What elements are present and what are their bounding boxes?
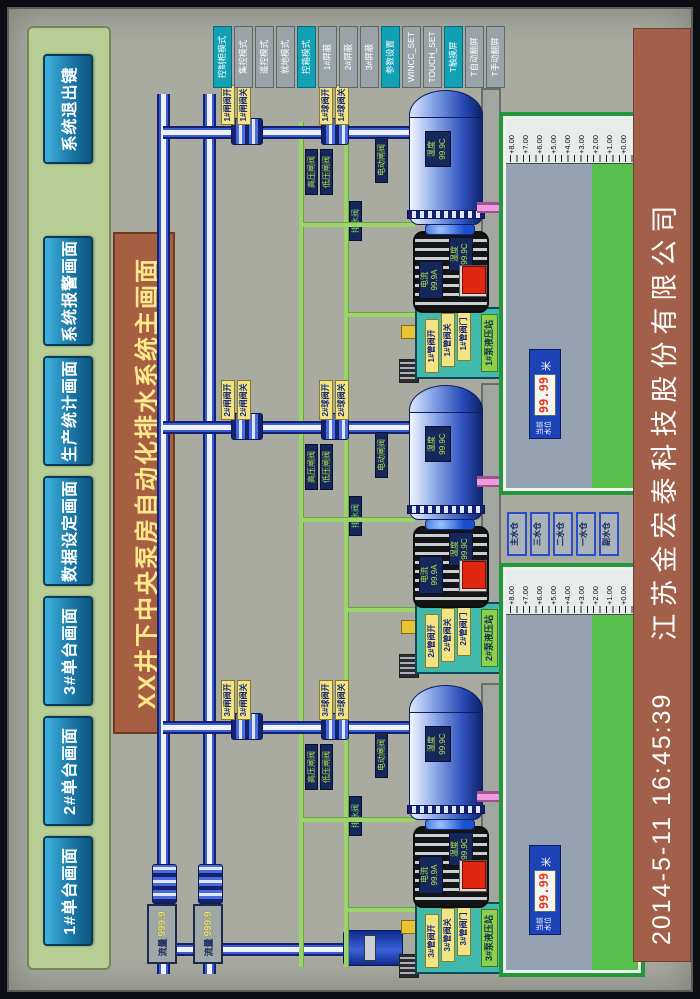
sump-button-two[interactable]: 二水仓	[553, 512, 573, 556]
mode-button-column: 控制柜模式 集控模式 遥控模式 就地模式 控箱模式 1#屏蔽 2#屏蔽 3#屏蔽…	[213, 26, 505, 88]
pump-flange-ring	[407, 210, 485, 219]
mode-button-mask-3[interactable]: 3#屏蔽	[360, 26, 379, 88]
valve-close-tag: 1#球阀关	[335, 85, 349, 125]
water-level-value: 99.99	[534, 870, 556, 912]
water-level-unit: 米	[538, 361, 553, 371]
status-bar: 2014-5-11 16:45:39 江苏金宏泰科技股份有限公司	[633, 28, 691, 962]
level-gauge: +8.00 +7.00 +6.00 +5.00 +4.00 +3.00 +2.0…	[506, 570, 638, 615]
water-surface	[592, 119, 638, 488]
water-surface	[592, 570, 638, 970]
valve-open-tag: 1#闸阀开	[221, 85, 235, 125]
hydraulic-station-panel: 2#管阀开 2#管阀关 2#管阀门 2#泵液压站	[415, 602, 503, 674]
pipe-valve-tag: 2#管阀关	[441, 608, 455, 662]
pipe-valve-tag: 1#管阀关	[441, 313, 455, 367]
sump-button-main[interactable]: 主水仓	[507, 512, 527, 556]
motor-current-label: 电流 99.9A	[419, 261, 443, 299]
mode-button-param-set[interactable]: 参数设置	[381, 26, 400, 88]
mode-button-mask-1[interactable]: 1#屏蔽	[318, 26, 337, 88]
gauge-tick-label: +0.00	[620, 121, 628, 154]
motor-stop-indicator[interactable]	[459, 265, 487, 297]
water-level-unit: 米	[538, 857, 553, 867]
gauge-tick-label: +5.00	[550, 121, 558, 154]
pipe-valve-tag: 1#管阀门	[457, 307, 471, 361]
hydraulic-station-title: 2#泵液压站	[481, 609, 498, 667]
pump-flange-ring	[407, 805, 485, 814]
mode-button-remote[interactable]: 遥控模式	[255, 26, 274, 88]
gauge-tick-label: +8.00	[508, 572, 516, 605]
sump-pool-1: +8.00 +7.00 +6.00 +5.00 +4.00 +3.00 +2.0…	[499, 112, 645, 495]
hydraulic-station-panel: 3#管阀开 3#管阀关 3#管阀门 3#泵液压站	[415, 902, 503, 974]
electric-valve-label: 电动闸阀	[375, 732, 388, 778]
gauge-tick-label: +8.00	[508, 121, 516, 154]
current-caption: 电流	[420, 858, 430, 892]
pump-coupling	[425, 519, 475, 530]
low-pressure-valve-label: 低压闸阀	[320, 744, 333, 790]
pipe-valve-tag: 2#管阀开	[425, 614, 439, 668]
sump-button-group: 主水仓 三水仓 二水仓 一水仓 副水仓	[507, 512, 619, 556]
mode-button-cabinet[interactable]: 控制柜模式	[213, 26, 232, 88]
drain-valve-label: 排水阀	[349, 201, 362, 241]
water-level-display-2: 当前水位 99.99 米	[529, 845, 561, 935]
gauge-tick-label: +7.00	[522, 121, 530, 154]
valve-open-tag: 3#球阀开	[319, 680, 333, 720]
gauge-tick-label: +5.00	[550, 572, 558, 605]
water-level-value: 99.99	[534, 374, 556, 416]
gauge-tick-label: +3.00	[578, 572, 586, 605]
water-level-display-1: 当前水位 99.99 米	[529, 349, 561, 439]
low-pressure-valve-label: 低压闸阀	[320, 149, 333, 195]
valve-status-tags: 1#球阀开 1#球阀关	[319, 85, 349, 125]
gauge-tick-label: +6.00	[536, 572, 544, 605]
current-caption: 电流	[420, 558, 430, 592]
company-name: 江苏金宏泰科技股份有限公司	[643, 199, 682, 641]
mode-button-auto-flip[interactable]: T自动翻屏	[465, 26, 484, 88]
mode-button-mask-2[interactable]: 2#屏蔽	[339, 26, 358, 88]
gauge-tick-label: +1.00	[606, 121, 614, 154]
valve-close-tag: 3#球阀关	[335, 680, 349, 720]
hydraulic-station-title: 3#泵液压站	[481, 909, 498, 967]
gauge-tick-label: +4.00	[564, 572, 572, 605]
pipe-valve-tag: 3#管阀门	[457, 902, 471, 956]
electric-valve-label: 电动闸阀	[375, 432, 388, 478]
valve-status-tags: 3#球阀开 3#球阀关	[319, 680, 349, 720]
valve-status-tags: 3#闸阀开 3#闸阀关	[221, 680, 251, 720]
datetime-text: 2014-5-11 16:45:39	[648, 693, 677, 945]
sump-pool-2: +8.00 +7.00 +6.00 +5.00 +4.00 +3.00 +2.0…	[499, 563, 645, 977]
high-pressure-valve-label: 高压闸阀	[305, 149, 318, 195]
temp-value: 99.9C	[437, 133, 448, 165]
green-drop-pipe	[303, 818, 415, 822]
current-value: 99.9A	[430, 263, 440, 297]
green-drop-pipe	[348, 313, 415, 317]
hmi-screen: 1#单台画面 2#单台画面 3#单台画面 数据设定画面 生产统计画面 系统报警画…	[7, 7, 693, 992]
pump-flange-ring	[407, 505, 485, 514]
low-pressure-valve-label: 低压闸阀	[320, 444, 333, 490]
electric-valve-label: 电动闸阀	[375, 137, 388, 183]
current-value: 99.9A	[430, 858, 440, 892]
gauge-tick-label: +4.00	[564, 121, 572, 154]
mode-button-touchscreen[interactable]: T触摸屏	[444, 26, 463, 88]
gauge-tick-label: +2.00	[592, 572, 600, 605]
hydraulic-station-title: 1#泵液压站	[481, 314, 498, 372]
valve-open-tag: 1#球阀开	[319, 85, 333, 125]
green-drop-pipe	[303, 518, 415, 522]
water-level-caption: 当前水位	[537, 419, 553, 435]
current-value: 99.9A	[430, 558, 440, 592]
sump-button-aux[interactable]: 副水仓	[599, 512, 619, 556]
water-level-caption: 当前水位	[537, 915, 553, 931]
gauge-tick-label: +6.00	[536, 121, 544, 154]
pump-dome	[409, 685, 483, 713]
mode-button-central[interactable]: 集控模式	[234, 26, 253, 88]
temp-caption: 温度	[426, 133, 437, 165]
pump-dome	[409, 90, 483, 118]
current-caption: 电流	[420, 263, 430, 297]
temp-value: 99.9C	[437, 728, 448, 760]
green-drop-pipe	[303, 223, 415, 227]
hydraulic-station-panel: 1#管阀开 1#管阀关 1#管阀门 1#泵液压站	[415, 307, 503, 379]
drain-valve-label: 排水阀	[349, 496, 362, 536]
pipe-valve-tag: 3#管阀开	[425, 914, 439, 968]
mode-button-manual-flip[interactable]: T手动翻屏	[486, 26, 505, 88]
gauge-tick-label: +3.00	[578, 121, 586, 154]
valve-close-tag: 1#闸阀关	[237, 85, 251, 125]
temp-caption: 温度	[426, 728, 437, 760]
valve-open-tag: 3#闸阀开	[221, 680, 235, 720]
pump-temp-label: 温度 99.9C	[425, 131, 451, 167]
pipe-valve-tag: 1#管阀开	[425, 319, 439, 373]
high-pressure-valve-label: 高压闸阀	[305, 444, 318, 490]
valve-close-tag: 3#闸阀关	[237, 680, 251, 720]
sump-button-one[interactable]: 一水仓	[576, 512, 596, 556]
gauge-tick-label: +7.00	[522, 572, 530, 605]
gauge-tick-label: +2.00	[592, 121, 600, 154]
mode-button-local[interactable]: 就地模式	[276, 26, 295, 88]
valve-status-tags: 1#闸阀开 1#闸阀关	[221, 85, 251, 125]
sump-button-three[interactable]: 三水仓	[530, 512, 550, 556]
pipe-valve-tag: 3#管阀关	[441, 908, 455, 962]
pipe-valve-tag: 2#管阀门	[457, 602, 471, 656]
level-gauge: +8.00 +7.00 +6.00 +5.00 +4.00 +3.00 +2.0…	[506, 119, 638, 164]
mode-button-wincc-set[interactable]: WINCC_SET	[402, 26, 421, 88]
motor-current-label: 电流 99.9A	[419, 856, 443, 894]
pump-coupling	[425, 819, 475, 830]
mode-button-touch-set[interactable]: TOUCH_SET	[423, 26, 442, 88]
pump-coupling	[425, 224, 475, 235]
pump-temp-label: 温度 99.9C	[425, 726, 451, 762]
drain-valve-label: 排水阀	[349, 796, 362, 836]
pump-temp-label: 温度 99.9C	[425, 426, 451, 462]
green-drop-pipe	[348, 908, 415, 912]
temp-caption: 温度	[426, 428, 437, 460]
pump-dome	[409, 385, 483, 413]
motor-stop-indicator[interactable]	[459, 560, 487, 592]
motor-current-label: 电流 99.9A	[419, 556, 443, 594]
motor-stop-indicator[interactable]	[459, 860, 487, 892]
high-pressure-valve-label: 高压闸阀	[305, 744, 318, 790]
temp-value: 99.9C	[437, 428, 448, 460]
gauge-tick-label: +1.00	[606, 572, 614, 605]
gauge-tick-label: +0.00	[620, 572, 628, 605]
green-drop-pipe	[348, 608, 415, 612]
mode-button-box[interactable]: 控箱模式	[297, 26, 316, 88]
